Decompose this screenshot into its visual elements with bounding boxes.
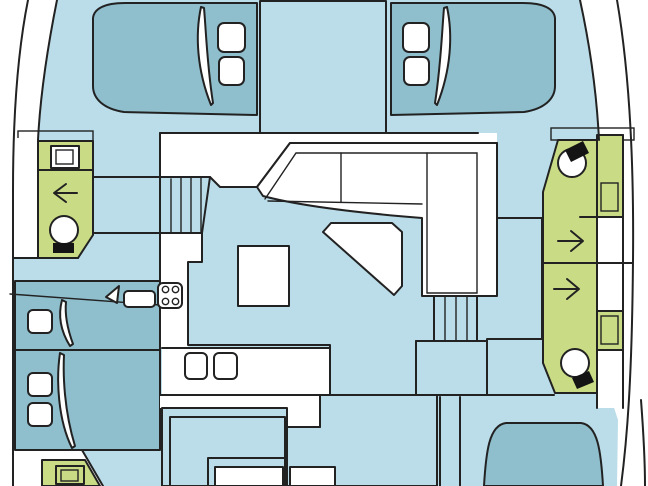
salon-top-deck-band [160,133,497,143]
toilet-tank [53,243,74,253]
helm-seat [484,423,603,486]
toilet [50,216,78,244]
cockpit-table [290,467,335,486]
galley-sink [185,353,207,379]
hatch [28,373,52,396]
deck-plan-page [0,0,648,486]
hatch [218,23,245,52]
hatch [219,57,244,85]
starboard-bow-cabin [391,3,555,115]
hatch [404,57,429,85]
port-mid-cabin [10,281,160,350]
hatch [28,403,52,426]
galley-counter [162,348,330,395]
port-bow-cabin [93,3,257,115]
side-shelf [124,291,155,307]
cockpit-table [215,467,283,486]
nav-cabinet [238,246,289,306]
stove [158,283,182,308]
hatch [403,23,429,52]
hatch [28,310,52,333]
deck-plan [0,0,648,486]
port-forward-head [38,141,93,258]
port-side-locker [14,138,38,258]
galley-sink [214,353,237,379]
